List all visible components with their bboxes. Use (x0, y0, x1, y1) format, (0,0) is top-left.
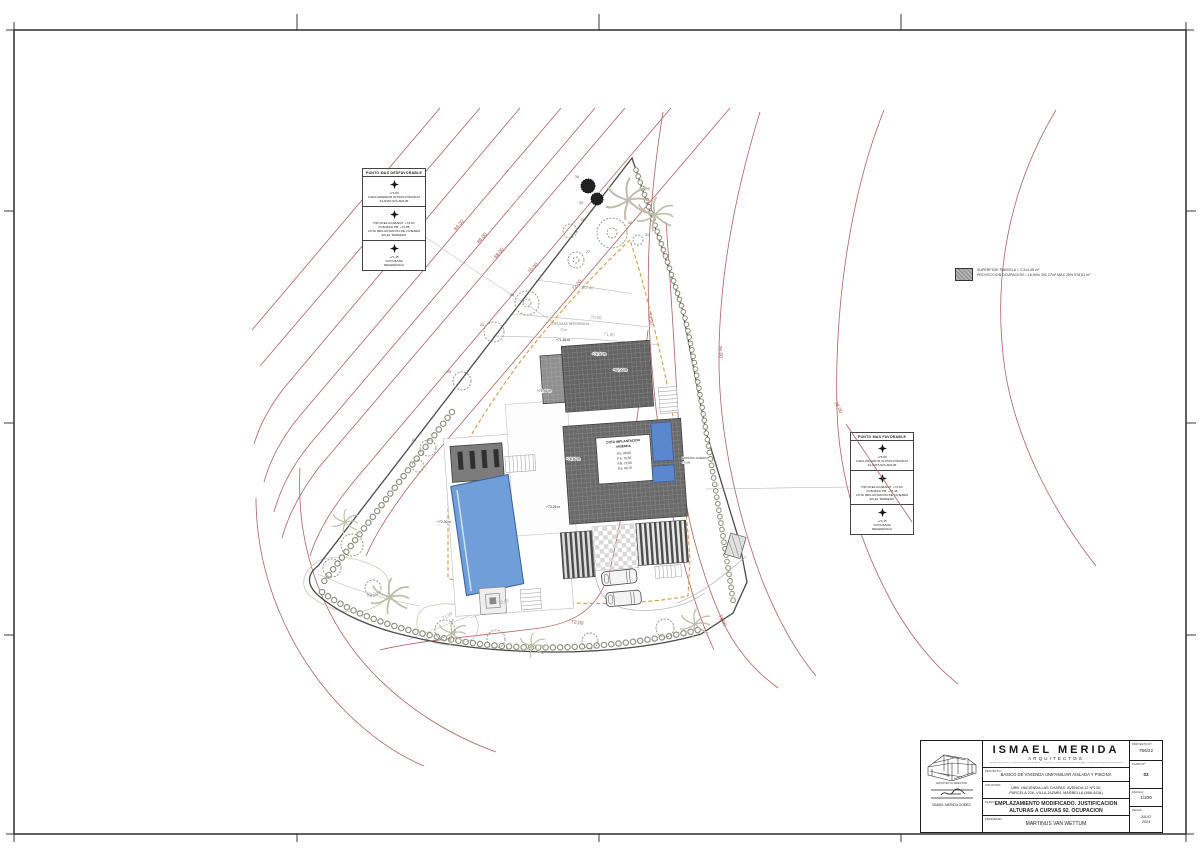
pergola (560, 531, 595, 579)
plano-label: PLANO: (985, 800, 995, 804)
firm-header: ISMAEL MERIDA ARQUITECTOS Avenida de Ast… (983, 741, 1129, 768)
contour-label: 70,00 (590, 315, 602, 321)
tree-number: 31 (645, 233, 649, 237)
site-plan: 64,00 66,00 68,00 70,00 72,00 74,00 76,0… (0, 0, 1200, 848)
base-ref-line: 72 m (560, 328, 567, 332)
anno-text: +74,15 COTA BASE REFERENCIA (852, 519, 912, 532)
tree-number: 24 (412, 438, 416, 442)
contour-label: 70,00 (527, 261, 540, 275)
fecha-label: FECHA: (1132, 808, 1142, 812)
contour-label: 71,00 (603, 332, 615, 338)
anno-cell: +73,00 CARA INFERIOR ULTIMO FORJADO PLAN… (363, 177, 425, 207)
situacion-value: URB. HACIENDA LAS CHAPAS, AVENIDA 12 Nº1… (983, 782, 1129, 798)
level-label: +72,00 m (437, 520, 451, 524)
pergola (636, 520, 689, 565)
occupancy-legend: SUPERFICIE PARCELA = 2.314,45 m² PROYECC… (955, 268, 1090, 281)
punto-mas-desfavorable-box: PUNTO MAS DESFAVORABLE +73,00 CARA INFER… (362, 168, 426, 271)
car (601, 569, 637, 587)
contour-label: 68,00 (493, 246, 506, 260)
skylight (652, 465, 675, 482)
anno-box-title: PUNTO MAS FAVORABLE (851, 433, 913, 441)
anno-box-title: PUNTO MAS DESFAVORABLE (363, 169, 425, 177)
contour-label: 72,00 (571, 278, 584, 292)
propiedad-label: PROPIEDAD: (985, 817, 1002, 821)
tree-number: 33 (579, 201, 583, 205)
firm-name: ISMAEL MERIDA (993, 744, 1120, 756)
level-marker-icon (390, 244, 399, 253)
skylight (651, 422, 674, 461)
house-group (438, 334, 751, 623)
tree-number: 30 (628, 221, 632, 225)
level-marker-icon (878, 474, 887, 483)
proyecto-label: PROYECTO: (985, 769, 1001, 773)
escala-cell: ESCALA: 1/200 (1130, 789, 1162, 807)
anno-text: PB NIVEL ACABADO: +73,00 FORJADO PB: +72… (364, 221, 424, 238)
firm-address: Avenida de Asturias · Urbanización Real … (989, 762, 1124, 764)
propiedad-row: PROPIEDAD: MARTINUS VAN WETTUM (983, 816, 1129, 832)
architect-house-sketch (924, 743, 980, 781)
contour-label: 64,00 (453, 218, 466, 232)
level-label: +71,45 m (537, 389, 551, 393)
occupancy-hatch-swatch (955, 268, 973, 281)
contour-label: 76,00 (716, 345, 723, 358)
base-ref-line: COTA BASE REFERENCIA (550, 322, 590, 326)
level-marker-icon (878, 508, 887, 517)
level-marker-icon (878, 444, 887, 453)
situacion-row: SITUACION: URB. HACIENDA LAS CHAPAS, AVE… (983, 782, 1129, 799)
level-label: +76,50 m (592, 352, 606, 356)
plano-no-cell: PLANO Nº: 03 (1130, 761, 1162, 789)
contour-label: 74,00 (646, 312, 654, 326)
tree-number: 28 (581, 218, 585, 222)
escala-label: ESCALA: (1132, 790, 1144, 794)
situacion-label: SITUACION: (985, 783, 1001, 787)
plano-no-label: PLANO Nº: (1132, 762, 1146, 766)
tree-number: 26 (510, 293, 514, 297)
level-label: +80,00 m (613, 368, 627, 372)
drawing-sheet: 64,00 66,00 68,00 70,00 72,00 74,00 76,0… (0, 0, 1200, 848)
level-label: +76,50 m (566, 457, 580, 461)
level-marker-icon (390, 210, 399, 219)
contour-label: 73,00 (716, 614, 727, 628)
punto-mas-favorable-box: PUNTO MAS FAVORABLE +75,60 CARA INFERIOR… (850, 432, 914, 535)
contour-label: 66,00 (476, 231, 489, 245)
title-block-logo-cell: ARQUITECTO DIRECTOR ISMAEL MERIDA GOMEZ (921, 741, 983, 832)
entrance-label: ENTRADA VIVIENDA +72,85 (682, 456, 708, 465)
firm-subtitle: ARQUITECTOS (1028, 756, 1084, 761)
anno-text: +71,15 COTA BASE REFERENCIA (364, 255, 424, 268)
anno-cell: PB NIVEL ACABADO: +73,00 FORJADO PB: +72… (363, 207, 425, 241)
contour-label: 78,00 (832, 401, 843, 415)
proyecto-no-cell: PROYECTO Nº: 766/22 (1130, 741, 1162, 761)
base-reference-label: COTA BASE REFERENCIA 72 m (550, 322, 590, 332)
anno-cell: PB NIVEL ACABADO: +73,60 FORJADO PB: +73… (851, 471, 913, 505)
signature (927, 785, 977, 801)
entrance-label-line: +72,85 (682, 461, 691, 465)
plano-row: PLANO: EMPLAZAMIENTO MODIFICADO. JUSTIFI… (983, 799, 1129, 816)
entrance-gate (725, 533, 746, 559)
contour-label: 69,00 (367, 591, 379, 599)
anno-cell: +75,60 CARA INFERIOR ULTIMO FORJADO PLAN… (851, 441, 913, 471)
anno-text: +75,60 CARA INFERIOR ULTIMO FORJADO PLAN… (852, 455, 912, 468)
contour-label: 72,00 (571, 619, 584, 627)
checker-terrace (592, 524, 639, 571)
fecha-cell: FECHA: JULIO 2023 (1130, 807, 1162, 832)
proyecto-no-label: PROYECTO Nº: (1132, 742, 1152, 746)
level-label: +73,26 m (546, 505, 560, 509)
propiedad-value: MARTINUS VAN WETTUM (983, 816, 1129, 832)
anno-text: +73,00 CARA INFERIOR ULTIMO FORJADO PLAN… (364, 191, 424, 204)
proyecto-row: PROYECTO: BASICO DE VIVIENDA UNIFAMILIAR… (983, 768, 1129, 782)
proyecto-value: BASICO DE VIVIENDA UNIFAMILIAR AISLADA Y… (983, 768, 1129, 781)
legend-line: PROYECCION OCUPACION = 16,94% 392,27m² M… (977, 273, 1090, 278)
entrance-label-line: ENTRADA VIVIENDA (682, 456, 708, 460)
plano-value: EMPLAZAMIENTO MODIFICADO. JUSTIFICACION … (983, 799, 1129, 815)
anno-text: PB NIVEL ACABADO: +73,60 FORJADO PB: +73… (852, 485, 912, 502)
anno-cell: +74,15 COTA BASE REFERENCIA (851, 505, 913, 534)
anno-cell: +71,15 COTA BASE REFERENCIA (363, 241, 425, 270)
tree-number: 34 (575, 175, 579, 179)
director-name: ISMAEL MERIDA GOMEZ (932, 803, 971, 807)
contour-label: 69,00 (582, 284, 594, 290)
tree-number: 25 (447, 370, 451, 374)
level-label: +71,65 m (556, 338, 570, 342)
car (606, 590, 642, 607)
tree-number: 23 (480, 323, 484, 327)
title-block: ARQUITECTO DIRECTOR ISMAEL MERIDA GOMEZ … (920, 740, 1163, 833)
contour-label: 71,00 (441, 611, 453, 621)
level-marker-icon (390, 180, 399, 189)
tree-number: 27 (586, 250, 590, 254)
